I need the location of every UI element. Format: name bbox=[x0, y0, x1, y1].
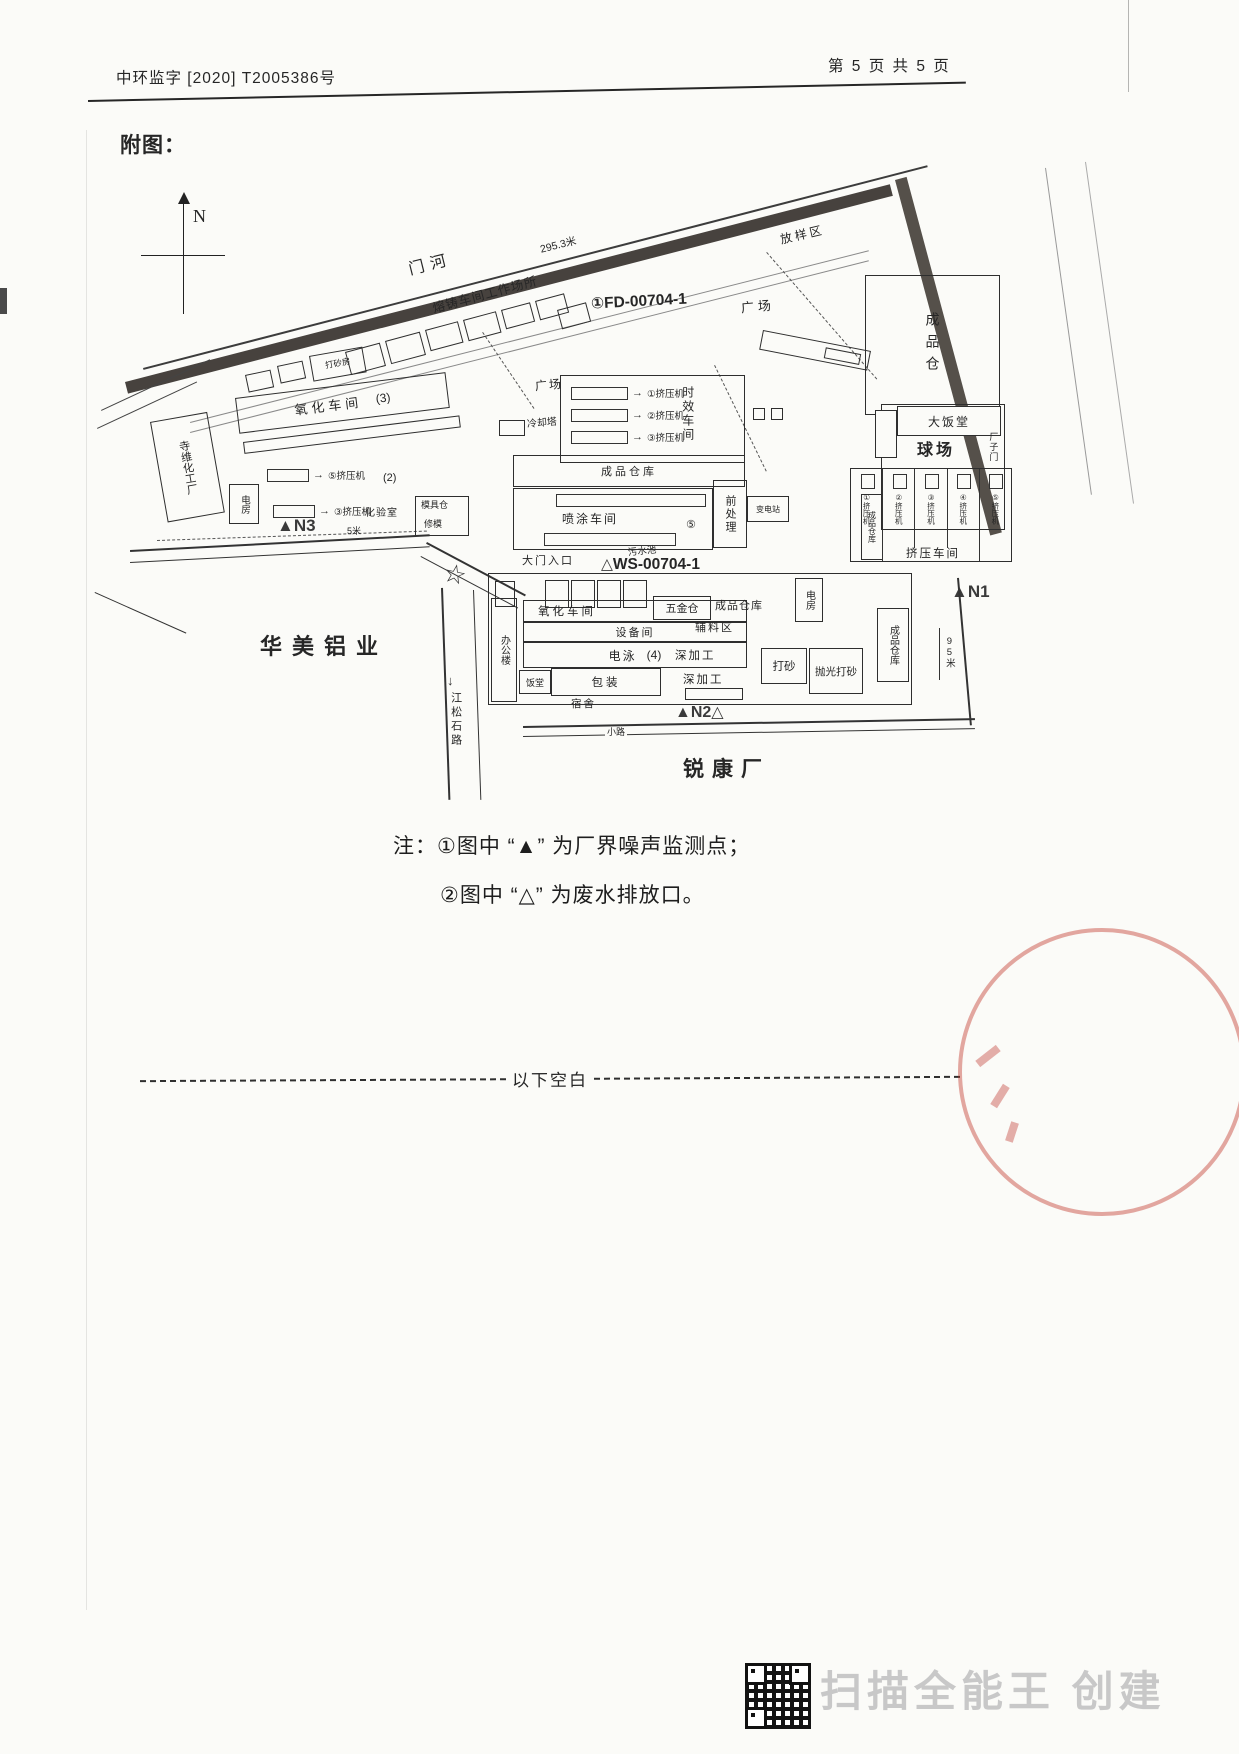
compass-north-label: N bbox=[193, 206, 206, 227]
label-finished-store: 成品仓 bbox=[923, 312, 943, 378]
hardware-store-box: 五金仓 bbox=[653, 596, 711, 620]
red-stamp-arc bbox=[958, 928, 1239, 1216]
noise-point-icon: ▲ bbox=[277, 516, 294, 535]
extrusion-machines-block: → ①挤压机 → ②挤压机 → ③挤压机 bbox=[560, 375, 745, 463]
machine-rect bbox=[571, 387, 628, 400]
building-box bbox=[277, 361, 306, 384]
canteen-small-box: 饭堂 bbox=[519, 670, 551, 694]
machine-row: → ②挤压机 bbox=[561, 404, 744, 426]
spray-inner-rect bbox=[556, 494, 706, 507]
south-fence-line bbox=[523, 718, 975, 728]
office-building: 办公楼 bbox=[491, 598, 517, 702]
label-layout-area: 放样区 bbox=[779, 224, 826, 248]
arrow-right-icon: → bbox=[313, 469, 324, 481]
label-south-road: 江松石路 bbox=[449, 692, 462, 748]
label-equipment-room: 设备间 bbox=[616, 624, 655, 640]
extrusion-bay: ①挤压机 bbox=[851, 469, 883, 561]
machine-rect bbox=[571, 431, 628, 444]
label-factory-gate: 厂子门 bbox=[988, 432, 998, 462]
scan-edge-line-top-right bbox=[1128, 0, 1129, 92]
label-bay-4: ④挤压机 bbox=[958, 493, 969, 525]
packing-box: 包装 bbox=[551, 668, 661, 696]
building-box bbox=[753, 408, 765, 420]
river-label: 门河 bbox=[407, 251, 454, 279]
machine-rect bbox=[957, 474, 971, 489]
label-num5: ⑤ bbox=[686, 519, 696, 532]
machine-row: → ①挤压机 bbox=[561, 382, 744, 404]
outfall-icon: △ bbox=[711, 704, 723, 721]
canteen-building: 大饭堂 bbox=[897, 406, 1001, 436]
boundary-line bbox=[101, 359, 210, 411]
label-canteen-big: 大饭堂 bbox=[928, 413, 970, 430]
label-packing: 包装 bbox=[592, 674, 621, 690]
label-neighbor-west: 华美铝业 bbox=[260, 634, 388, 659]
label-finished-warehouse-2: 成品仓库 bbox=[715, 600, 763, 613]
substation-box: 变电站 bbox=[747, 496, 789, 522]
building-box bbox=[463, 311, 502, 341]
label-sandblast-room: 打砂房 bbox=[324, 357, 351, 371]
building-box bbox=[385, 332, 426, 364]
label-extrusion-hall: 挤压车间 bbox=[903, 548, 963, 561]
finished-warehouse-4: 成品仓库 bbox=[877, 608, 909, 682]
label-extruder-3: ③挤压机 bbox=[647, 430, 684, 444]
scan-crease-line bbox=[86, 130, 87, 1610]
label-cooling-tower: 冷却塔 bbox=[527, 417, 558, 431]
compass-arrowhead bbox=[178, 192, 190, 204]
road-line bbox=[473, 590, 481, 800]
boundary-length-label: 295.3米 bbox=[539, 235, 578, 256]
label-office: 办公楼 bbox=[497, 635, 512, 665]
building-box bbox=[501, 302, 535, 329]
label-deep-processing-2: 深加工 bbox=[683, 674, 724, 687]
label-num3: (3) bbox=[375, 390, 391, 406]
site-plan-map: N 门河 295.3米 放样区 熔铸车间工作场所 广场 ①FD-00704-1 … bbox=[95, 160, 1125, 835]
walkway-dashed bbox=[482, 332, 534, 409]
label-substation: 变电站 bbox=[756, 504, 780, 515]
outfall-icon: △ bbox=[601, 556, 613, 573]
label-bay-3: ③挤压机 bbox=[926, 493, 937, 525]
building-box bbox=[245, 370, 274, 393]
label-canteen-small: 饭堂 bbox=[526, 676, 544, 689]
label-hardware-store: 五金仓 bbox=[666, 600, 699, 616]
power-room-2: 电房 bbox=[795, 578, 823, 622]
label-power-room-2: 电房 bbox=[802, 590, 817, 610]
label-main-gate: 大门入口 bbox=[522, 555, 574, 568]
cooling-tower-box bbox=[499, 420, 525, 436]
arrow-right-icon: → bbox=[319, 505, 330, 517]
machine-rect bbox=[571, 409, 628, 422]
label-oxidation-bottom: 氧化车间 bbox=[524, 603, 596, 619]
label-mold-repair: 修模 bbox=[424, 519, 442, 529]
building-box bbox=[875, 410, 897, 458]
map-note-line-1: 注：①图中 “▲” 为厂界噪声监测点； bbox=[393, 835, 750, 859]
label-bay-5: ⑤挤压机 bbox=[990, 493, 1001, 525]
label-bay-1: ①挤压机 bbox=[861, 493, 872, 525]
slanted-annex-box bbox=[759, 330, 871, 371]
qr-code bbox=[745, 1663, 811, 1729]
label-extruder-1: ①挤压机 bbox=[647, 386, 684, 400]
south-fence-line bbox=[523, 728, 975, 737]
sandblast-box: 打砂 bbox=[761, 648, 807, 684]
figure-label: 附图： bbox=[120, 134, 186, 158]
oxidation-bottom-row: 氧化车间 bbox=[523, 600, 747, 622]
building-box bbox=[425, 321, 464, 351]
building-box bbox=[771, 408, 783, 420]
road-arrow-down-icon: ↓ bbox=[447, 674, 454, 689]
label-mold-store: 模具仓 bbox=[421, 500, 448, 510]
machine-rect bbox=[989, 474, 1003, 489]
compass-needle bbox=[183, 202, 184, 314]
label-pretreatment: 前处理 bbox=[722, 495, 738, 534]
arrow-right-icon: → bbox=[632, 387, 643, 399]
power-room-left-box: 电房 bbox=[229, 484, 259, 524]
east-fence-line-b bbox=[1085, 162, 1134, 504]
map-note-line-2: ②图中 “△” 为废水排放口。 bbox=[440, 884, 705, 908]
label-plaza-1: 广场 bbox=[740, 299, 775, 317]
polish-sandblast-box: 抛光打砂 bbox=[809, 648, 863, 694]
label-polish-sandblast: 抛光打砂 bbox=[815, 664, 857, 679]
label-neighbor-south: 锐康厂 bbox=[683, 758, 770, 782]
qr-finder bbox=[745, 1707, 767, 1729]
machine-row: → ③挤压机 bbox=[561, 426, 744, 448]
label-plaza-2: 广场 bbox=[534, 378, 563, 394]
machine-annotation-row: → ⑤挤压机 bbox=[267, 468, 365, 482]
label-num4: (4) bbox=[647, 648, 662, 662]
label-chem-plant: 寺维化工厂 bbox=[175, 439, 200, 496]
label-small-road: 小路 bbox=[605, 727, 627, 737]
machine-rect bbox=[267, 469, 309, 482]
divider-text: 以下空白 bbox=[506, 1066, 594, 1091]
road-line bbox=[95, 592, 187, 634]
monitoring-point-n3: ▲N3 bbox=[277, 516, 316, 536]
extrusion-bay: ⑤挤压机 bbox=[980, 469, 1011, 561]
n3-label: N3 bbox=[294, 516, 316, 535]
divider-dash-right bbox=[594, 1075, 960, 1079]
label-left-machine-5: ⑤挤压机 bbox=[328, 468, 365, 482]
annex-inner-rect bbox=[824, 347, 861, 365]
label-lab: 化验室 bbox=[365, 508, 398, 520]
arrow-right-icon: → bbox=[632, 431, 643, 443]
scanned-document-page: 中环监字 [2020] T2005386号 第 5 页 共 5 页 附图： N … bbox=[0, 0, 1239, 1754]
n1-distance: 95米 bbox=[943, 636, 954, 668]
n1-label: N1 bbox=[968, 582, 990, 601]
scan-edge-mark bbox=[0, 288, 7, 314]
noise-point-icon: ▲ bbox=[675, 704, 691, 721]
label-dorm: 宿舍 bbox=[571, 698, 596, 710]
finished-store-building: 成品仓 bbox=[865, 275, 1000, 415]
mold-block: 模具仓 修模 bbox=[415, 496, 469, 536]
label-power-room-left: 电房 bbox=[237, 495, 251, 514]
label-deep-processing-1: 深加工 bbox=[675, 650, 716, 663]
label-num2: (2) bbox=[383, 472, 396, 485]
label-bay-2: ②挤压机 bbox=[893, 493, 904, 525]
compass-crossbar bbox=[141, 255, 225, 256]
n3-distance: 5米 bbox=[347, 526, 361, 536]
spray-workshop-block: 喷涂车间 ⑤ bbox=[513, 488, 713, 550]
chem-plant-block: 寺维化工厂 bbox=[150, 412, 225, 523]
label-electrophoresis: 电泳 bbox=[609, 647, 637, 664]
machine-rect bbox=[861, 474, 875, 489]
outfall-ws: △WS-00704-1 bbox=[601, 556, 700, 574]
page-number: 第 5 页 共 5 页 bbox=[828, 58, 951, 76]
arrow-right-icon: → bbox=[632, 409, 643, 421]
machine-rect bbox=[925, 474, 939, 489]
label-oxidation-top: 氧化车间 bbox=[293, 391, 363, 418]
ws-label: WS-00704-1 bbox=[613, 556, 700, 573]
qr-finder bbox=[789, 1663, 811, 1685]
sandblast-room-box: 打砂房 bbox=[309, 347, 367, 382]
label-spray-workshop: 喷涂车间 bbox=[562, 513, 618, 527]
label-finished-warehouse-4: 成品仓库 bbox=[886, 625, 901, 665]
blank-below-divider: 以下空白 bbox=[140, 1064, 960, 1093]
label-extruder-2: ②挤压机 bbox=[647, 408, 684, 422]
distance-bracket bbox=[939, 628, 940, 680]
furnace-box bbox=[685, 688, 743, 700]
qr-finder bbox=[745, 1663, 767, 1685]
label-court: 球场 bbox=[917, 442, 955, 460]
label-sandblast: 打砂 bbox=[773, 658, 796, 674]
machine-rect bbox=[893, 474, 907, 489]
pretreatment-box: 前处理 bbox=[713, 480, 747, 548]
n2-label: N2 bbox=[691, 704, 711, 721]
scanner-credit: 扫描全能王 创建 bbox=[820, 1668, 1166, 1716]
finished-warehouse-mid: 成品仓库 bbox=[513, 455, 745, 487]
document-number: 中环监字 [2020] T2005386号 bbox=[116, 70, 336, 88]
divider-dash-left bbox=[140, 1078, 506, 1082]
monitoring-point-n2: ▲N2△ bbox=[675, 704, 724, 722]
label-aux-area: 辅料区 bbox=[695, 622, 734, 635]
east-fence-line-a bbox=[1045, 168, 1092, 495]
label-finished-warehouse-mid: 成品仓库 bbox=[601, 463, 657, 479]
gate-star-icon: ☆ bbox=[440, 558, 469, 592]
